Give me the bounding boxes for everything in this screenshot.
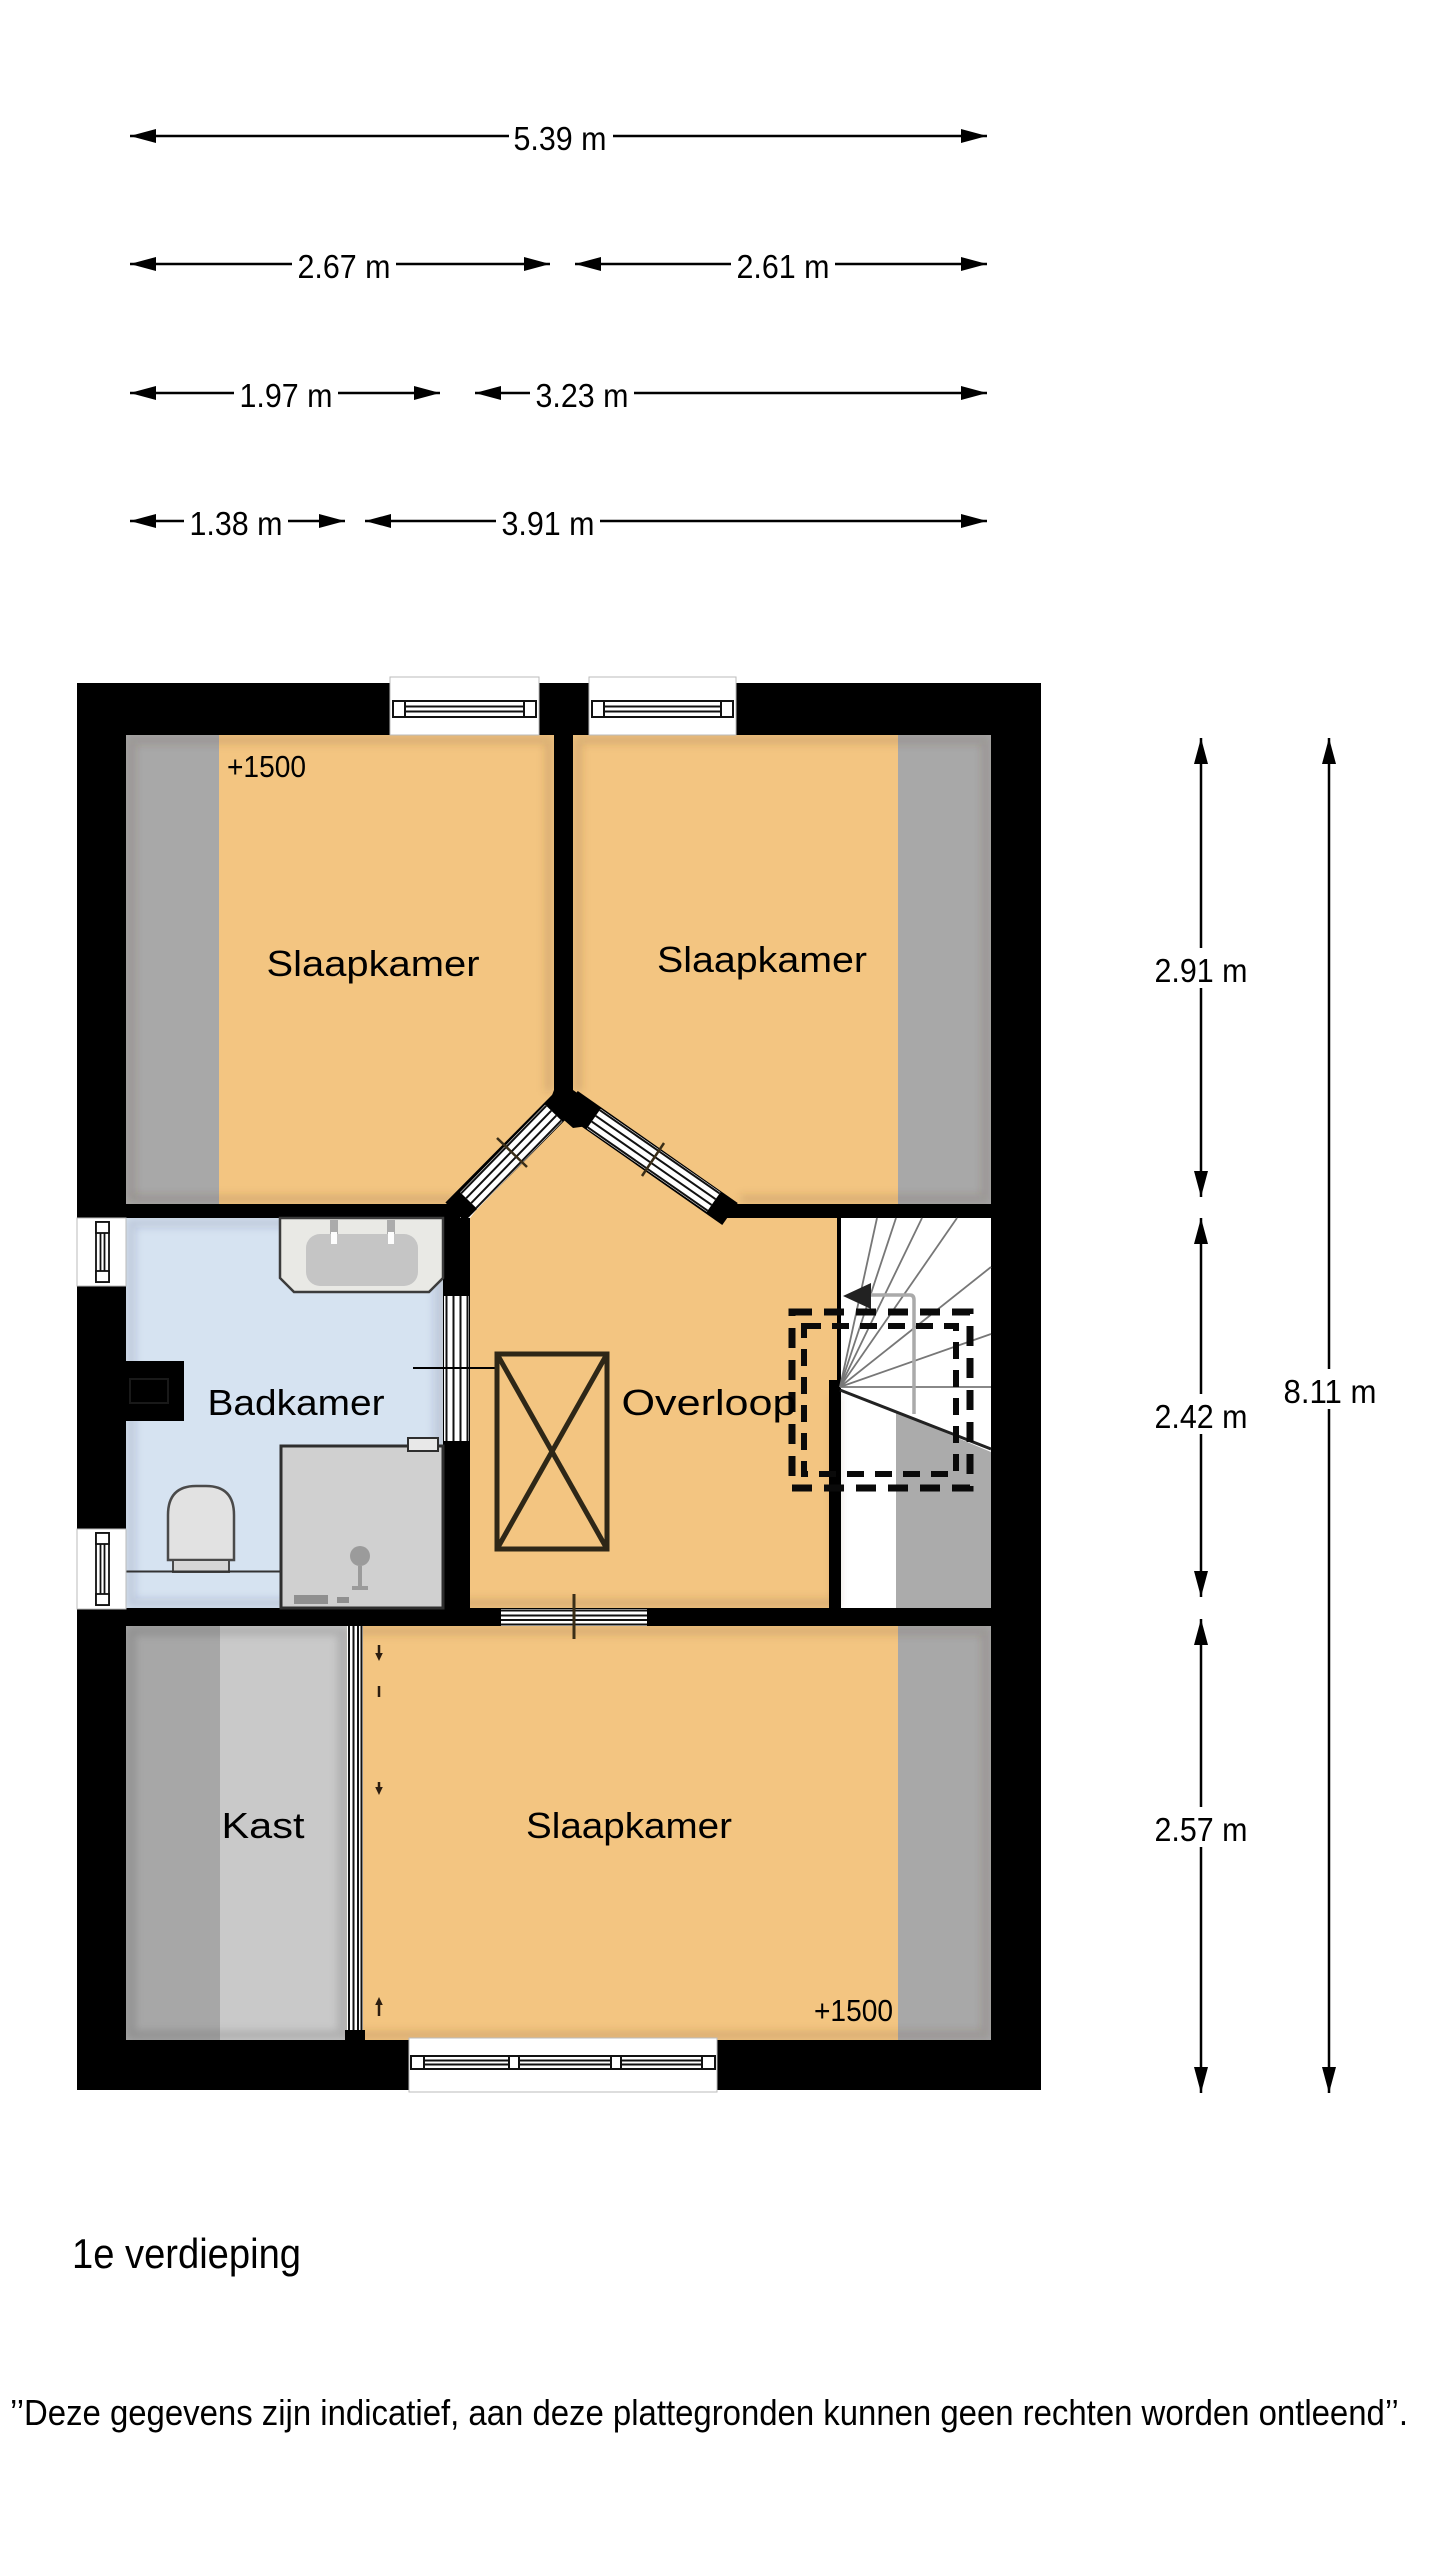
svg-text:Slaapkamer: Slaapkamer: [657, 939, 867, 980]
svg-text:Overloop: Overloop: [622, 1382, 797, 1423]
svg-text:5.39 m: 5.39 m: [514, 120, 607, 157]
svg-text:2.91 m: 2.91 m: [1155, 952, 1248, 989]
svg-text:’’Deze gegevens zijn indicatie: ’’Deze gegevens zijn indicatief, aan dez…: [10, 2392, 1408, 2433]
svg-text:3.23 m: 3.23 m: [536, 377, 629, 414]
svg-text:2.57 m: 2.57 m: [1155, 1811, 1248, 1848]
svg-text:8.11 m: 8.11 m: [1284, 1373, 1377, 1410]
svg-text:Badkamer: Badkamer: [208, 1382, 385, 1423]
svg-text:1e verdieping: 1e verdieping: [72, 2230, 301, 2277]
svg-text:Kast: Kast: [222, 1805, 305, 1846]
svg-text:1.97 m: 1.97 m: [240, 377, 333, 414]
svg-text:Slaapkamer: Slaapkamer: [526, 1805, 732, 1846]
svg-text:2.67 m: 2.67 m: [298, 248, 391, 285]
svg-text:3.91 m: 3.91 m: [502, 505, 595, 542]
svg-text:+1500: +1500: [227, 749, 306, 784]
svg-text:+1500: +1500: [814, 1993, 893, 2028]
svg-text:2.61 m: 2.61 m: [737, 248, 830, 285]
svg-text:Slaapkamer: Slaapkamer: [267, 943, 480, 984]
svg-text:2.42 m: 2.42 m: [1155, 1398, 1248, 1435]
svg-text:1.38 m: 1.38 m: [190, 505, 283, 542]
